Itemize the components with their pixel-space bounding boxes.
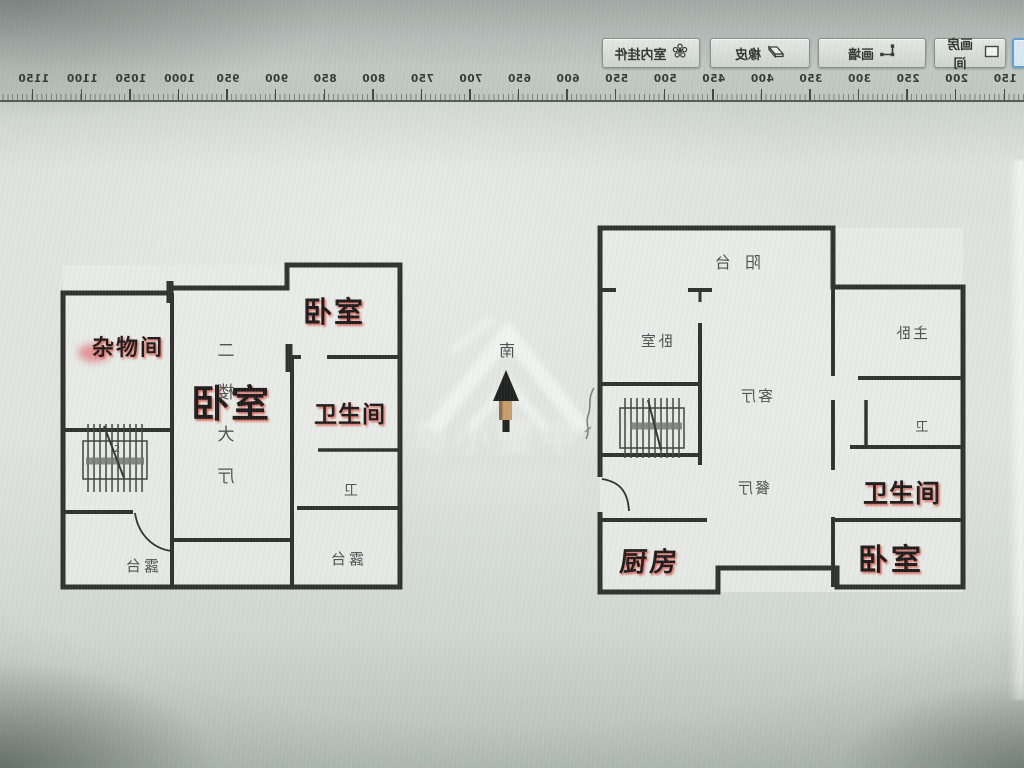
drawing-canvas[interactable]: 与小壁中 南 (0, 100, 1024, 768)
pen-scribble (585, 388, 594, 439)
screen-edge-glare (1008, 160, 1024, 700)
south-label: 南 (499, 341, 515, 360)
bathroom-left-annotation: 卫生间 (314, 402, 386, 428)
storage-annotation: 杂物间 (92, 335, 164, 361)
ruler-number: 850 (305, 73, 345, 85)
ruler-number: 750 (402, 73, 442, 85)
toolbar: 字 画房间 画墙 橡皮 室内挂件 (0, 0, 1024, 72)
ruler-number: 950 (208, 73, 248, 85)
wc-label-left: 卫 (344, 483, 358, 499)
ruler-major-tick (372, 89, 373, 100)
app-header: 字 画房间 画墙 橡皮 室内挂件 (0, 0, 1024, 100)
indoor-items-button[interactable]: 室内挂件 (602, 38, 700, 68)
rectangle-icon (984, 45, 999, 62)
ruler-major-tick (955, 89, 956, 100)
ruler-number: 350 (791, 73, 831, 85)
eraser-label: 橡皮 (735, 44, 761, 63)
ruler-number: 450 (694, 73, 734, 85)
ruler-major-tick (518, 89, 519, 100)
eraser-button[interactable]: 橡皮 (710, 38, 810, 68)
ruler-number: 550 (596, 73, 636, 85)
balcony-label: 阳台 (701, 253, 761, 272)
draw-wall-button[interactable]: 画墙 (818, 38, 926, 68)
draw-room-label: 画房间 (941, 34, 979, 72)
ruler-major-tick (664, 89, 665, 100)
ruler-major-tick (469, 89, 470, 100)
bedroom-main-annotation: 卧室 (191, 382, 271, 426)
ruler-number: 800 (354, 73, 394, 85)
ruler-number: 250 (888, 73, 928, 85)
ruler-major-tick (32, 89, 33, 100)
flower-icon (672, 43, 688, 63)
stair-floor-number: 2 (114, 444, 120, 455)
ruler-number: 600 (548, 73, 588, 85)
ruler-major-tick (421, 89, 422, 100)
living-room-label: 客厅 (739, 387, 773, 405)
draw-wall-label: 画墙 (848, 44, 874, 63)
bathroom-right-annotation: 卫生间 (863, 479, 941, 508)
ruler-number: 200 (936, 73, 976, 85)
ruler-major-tick (809, 89, 810, 100)
bedroom-top-annotation: 卧室 (303, 295, 365, 329)
ruler-major-tick (712, 89, 713, 100)
ruler-minor-ticks (0, 94, 1024, 100)
bedroom-right-annotation: 卧室 (858, 543, 924, 578)
ruler-major-tick (858, 89, 859, 100)
ruler-major-tick (275, 89, 276, 100)
ruler-major-tick (178, 89, 179, 100)
screen-photo: 字 画房间 画墙 橡皮 室内挂件 (0, 0, 1024, 768)
draw-room-button[interactable]: 画房间 (934, 38, 1006, 68)
ruler-major-tick (1004, 89, 1005, 100)
terrace-label-right: 露台 (328, 550, 364, 568)
ruler-number: 700 (451, 73, 491, 85)
terrace-label-left: 露台 (123, 557, 159, 575)
master-bedroom-label: 主卧 (894, 324, 928, 342)
ruler-major-tick (761, 89, 762, 100)
ruler-number: 300 (839, 73, 879, 85)
ruler-major-tick (226, 89, 227, 100)
indoor-items-label: 室内挂件 (615, 44, 667, 63)
text-tool-button[interactable]: 字 (1012, 38, 1024, 68)
kitchen-annotation: 厨房 (618, 547, 681, 578)
ruler-number: 400 (742, 73, 782, 85)
ruler-major-tick (615, 89, 616, 100)
ruler-major-tick (906, 89, 907, 100)
ruler-number: 1050 (111, 73, 151, 85)
polyline-icon (879, 44, 896, 62)
ruler-major-tick (129, 89, 130, 100)
ruler-major-tick (324, 89, 325, 100)
ruler-number: 150 (985, 73, 1024, 85)
ruler-major-tick (81, 89, 82, 100)
ruler-number: 900 (256, 73, 296, 85)
bedroom-small-label: 卧室 (639, 332, 673, 350)
watermark-logo: 与小壁中 (411, 318, 584, 506)
ruler-major-tick (566, 89, 567, 100)
ruler-number: 500 (645, 73, 685, 85)
eraser-icon (766, 44, 785, 62)
watermark-text: 与小壁中 (411, 417, 583, 460)
wc-label-right: 卫 (915, 420, 928, 435)
ruler-number: 650 (499, 73, 539, 85)
ruler-number: 1000 (159, 73, 199, 85)
floorplan-drawing: 与小壁中 南 (0, 0, 1024, 768)
dining-room-label: 餐厅 (736, 479, 770, 497)
ruler-number: 1100 (62, 73, 102, 85)
ruler-number: 1150 (14, 73, 54, 85)
horizontal-ruler: 1502002503003504004505005506006507007508… (0, 70, 1024, 102)
